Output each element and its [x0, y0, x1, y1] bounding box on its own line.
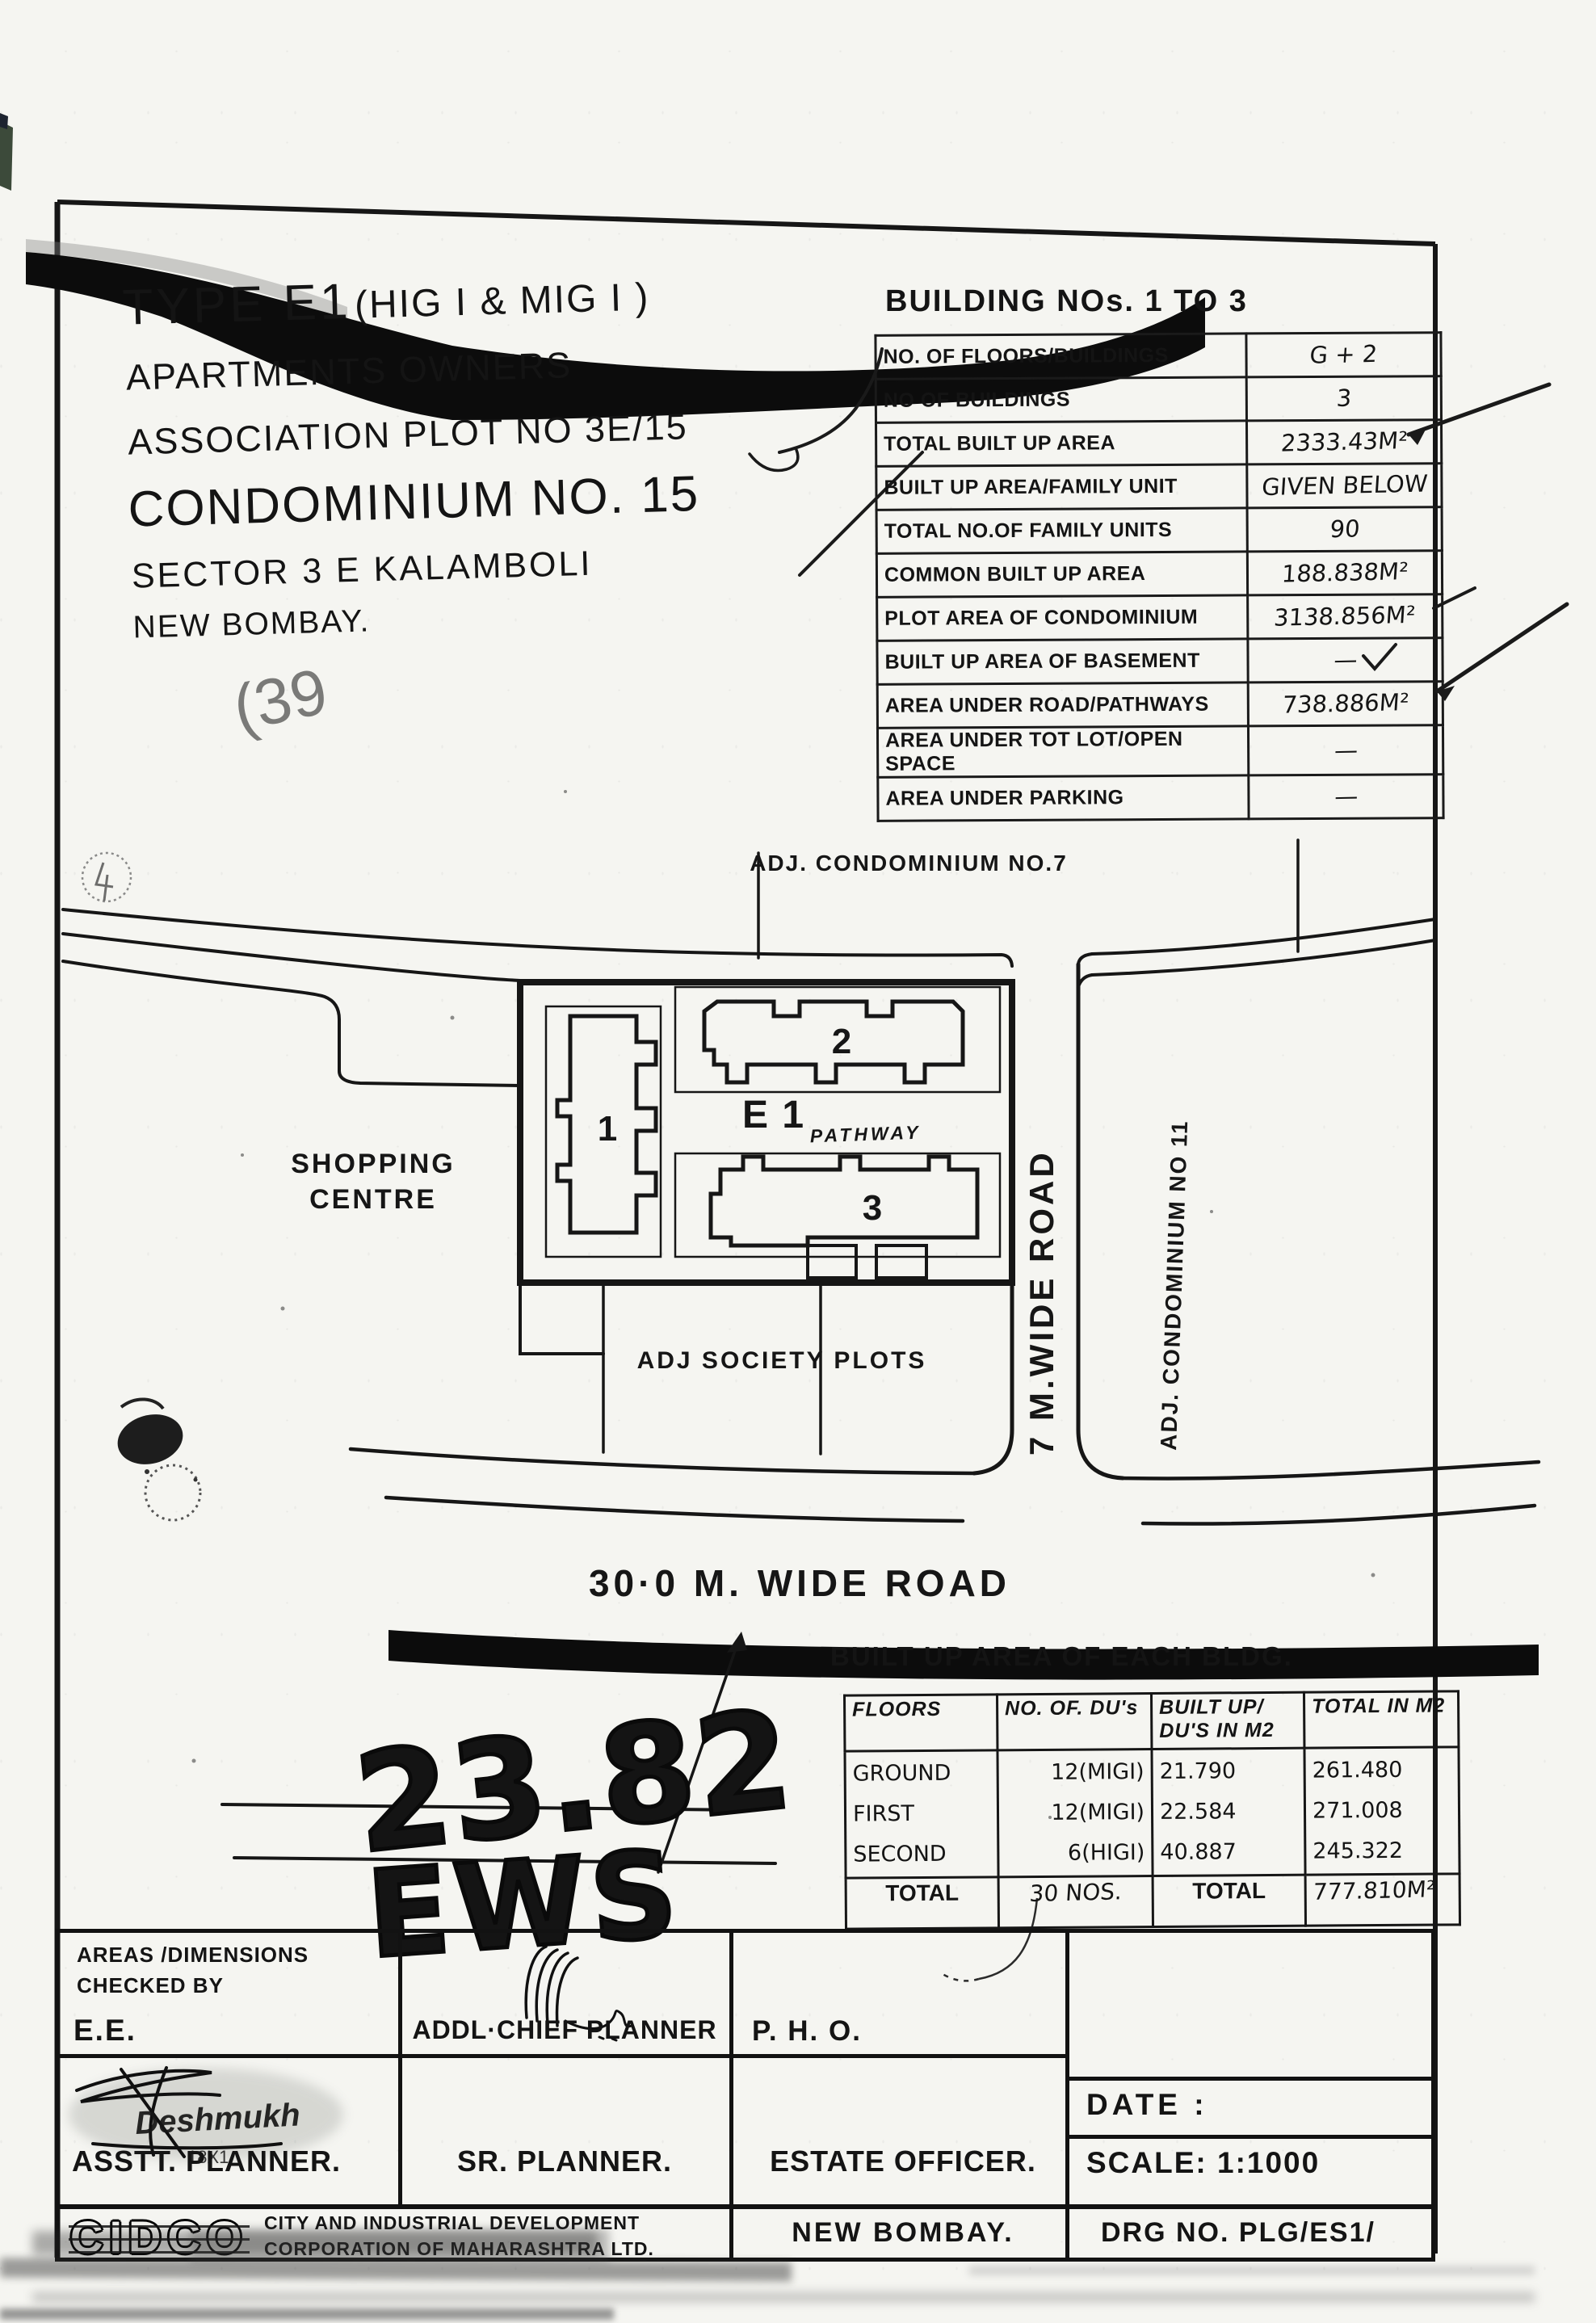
divider	[1065, 2077, 1431, 2081]
table-header-row: FLOORS NO. OF. DU's BUILT UP/ DU'S IN M2…	[845, 1691, 1459, 1751]
label-building-2: 2	[832, 1022, 851, 1061]
table-row: PLOT AREA OF CONDOMINIUM3138.856M²	[877, 594, 1443, 641]
floors-table-title: BUILT UP AREA OF EACH BLDG.	[830, 1641, 1293, 1672]
new-bombay-label: NEW BOMBAY.	[745, 2217, 1060, 2249]
floors-table: FLOORS NO. OF. DU's BUILT UP/ DU'S IN M2…	[843, 1690, 1461, 1930]
building-data-table: NO. OF FLOORS/BUILDINGSG + 2 NO OF BUILD…	[874, 331, 1444, 822]
ee-label: E.E.	[73, 2014, 136, 2048]
table-row: NO. OF FLOORS/BUILDINGSG + 2	[876, 333, 1441, 380]
pho-label: P. H. O.	[752, 2015, 862, 2048]
title-line-2: APARTMENTS OWNERS	[125, 344, 573, 398]
label-road-30m: 30·0 M. WIDE ROAD	[589, 1562, 1010, 1604]
label-shopping-1: SHOPPING	[291, 1149, 455, 1179]
cidco-logo: CIDCO	[70, 2211, 248, 2263]
label-adj-condo-11: ADJ. CONDOMINIUM NO 11	[1156, 1119, 1192, 1451]
divider	[59, 2204, 1431, 2209]
logo-stripe	[69, 2225, 250, 2228]
label-road-7m: 7 M.WIDE ROAD	[1023, 1149, 1060, 1456]
table-row: BUILT UP AREA OF BASEMENT—	[877, 638, 1443, 685]
table-total-row: TOTAL 30 NOS. TOTAL 777.810M²	[846, 1874, 1459, 1929]
addl-chief-planner-label: ADDL·CHIEF PLANNER	[406, 2015, 723, 2045]
table-row: NO OF BUILDINGS3	[876, 376, 1441, 423]
project-title-block: TYPE E1 (HIG I & MIG I ) APARTMENTS OWNE…	[122, 257, 926, 715]
table-row: BUILT UP AREA/FAMILY UNITGIVEN BELOW	[876, 464, 1442, 510]
label-pathway: PATHWAY	[809, 1122, 922, 1147]
label-e1: E 1	[742, 1094, 805, 1136]
logo-stripe	[69, 2251, 250, 2254]
label-shopping-2: CENTRE	[309, 1184, 437, 1215]
label-building-1: 1	[598, 1109, 617, 1149]
title-line-1: TYPE E1 (HIG I & MIG I )	[122, 265, 651, 337]
scan-smudge	[0, 2308, 614, 2320]
scale-label: SCALE: 1:1000	[1086, 2146, 1320, 2180]
table-row: AREA UNDER PARKING—	[878, 775, 1443, 821]
asst-planner-label: ASSTT. PLANNER.	[72, 2144, 341, 2178]
checked-by-line2: CHECKED BY	[77, 1973, 224, 1998]
divider	[398, 1933, 402, 2204]
divider	[59, 2054, 1067, 2058]
scan-smudge	[969, 2266, 1535, 2275]
label-building-3: 3	[863, 1188, 882, 1228]
org-line-1: CITY AND INDUSTRIAL DEVELOPMENT	[264, 2212, 640, 2234]
label-adj-society: ADJ SOCIETY PLOTS	[637, 1347, 927, 1374]
table-row: AREA UNDER ROAD/PATHWAYS738.886M²	[877, 682, 1443, 729]
org-line-2: CORPORATION OF MAHARASHTRA LTD.	[264, 2238, 654, 2260]
divider	[1065, 2135, 1431, 2139]
estate-officer-label: ESTATE OFFICER.	[745, 2144, 1060, 2178]
table-row: TOTAL NO.OF FAMILY UNITS90	[876, 507, 1442, 554]
date-label: DATE :	[1086, 2088, 1208, 2122]
title-line-4: CONDOMINIUM NO. 15	[128, 465, 700, 539]
logo-stripe	[69, 2238, 250, 2241]
title-hig-mig: (HIG I & MIG I )	[354, 276, 650, 327]
building-table-title: BUILDING NOs. 1 TO 3	[885, 284, 1248, 319]
title-line-3: ASSOCIATION PLOT NO 3E/15	[128, 405, 689, 463]
scan-smudge	[32, 2292, 1535, 2302]
sr-planner-label: SR. PLANNER.	[406, 2144, 723, 2178]
scanned-drawing-page: ADJ. CONDOMINIUM NO.7 SHOPPING CENTRE 1 …	[0, 0, 1596, 2323]
table-row: COMMON BUILT UP AREA188.838M²	[876, 551, 1442, 598]
title-line-5: SECTOR 3 E KALAMBOLI	[131, 544, 593, 597]
drg-no-label: DRG NO. PLG/ES1/	[1101, 2217, 1375, 2249]
title-type: TYPE E1	[122, 274, 352, 336]
title-line-6: NEW BOMBAY.	[132, 603, 371, 645]
table-row: AREA UNDER TOT LOT/OPEN SPACE—	[877, 725, 1443, 778]
checked-by-line1: AREAS /DIMENSIONS	[77, 1943, 309, 1968]
table-body-row: GROUND FIRST SECOND 12(MIGI) 12(MIGI) 6(…	[845, 1747, 1459, 1878]
signature-title-block: AREAS /DIMENSIONS CHECKED BY E.E. ADDL·C…	[55, 1929, 1435, 2262]
arrowhead-road	[727, 1632, 747, 1653]
table-row: TOTAL BUILT UP AREA2333.43M²	[876, 420, 1441, 467]
label-adj-condo-7: ADJ. CONDOMINIUM NO.7	[750, 851, 1068, 876]
